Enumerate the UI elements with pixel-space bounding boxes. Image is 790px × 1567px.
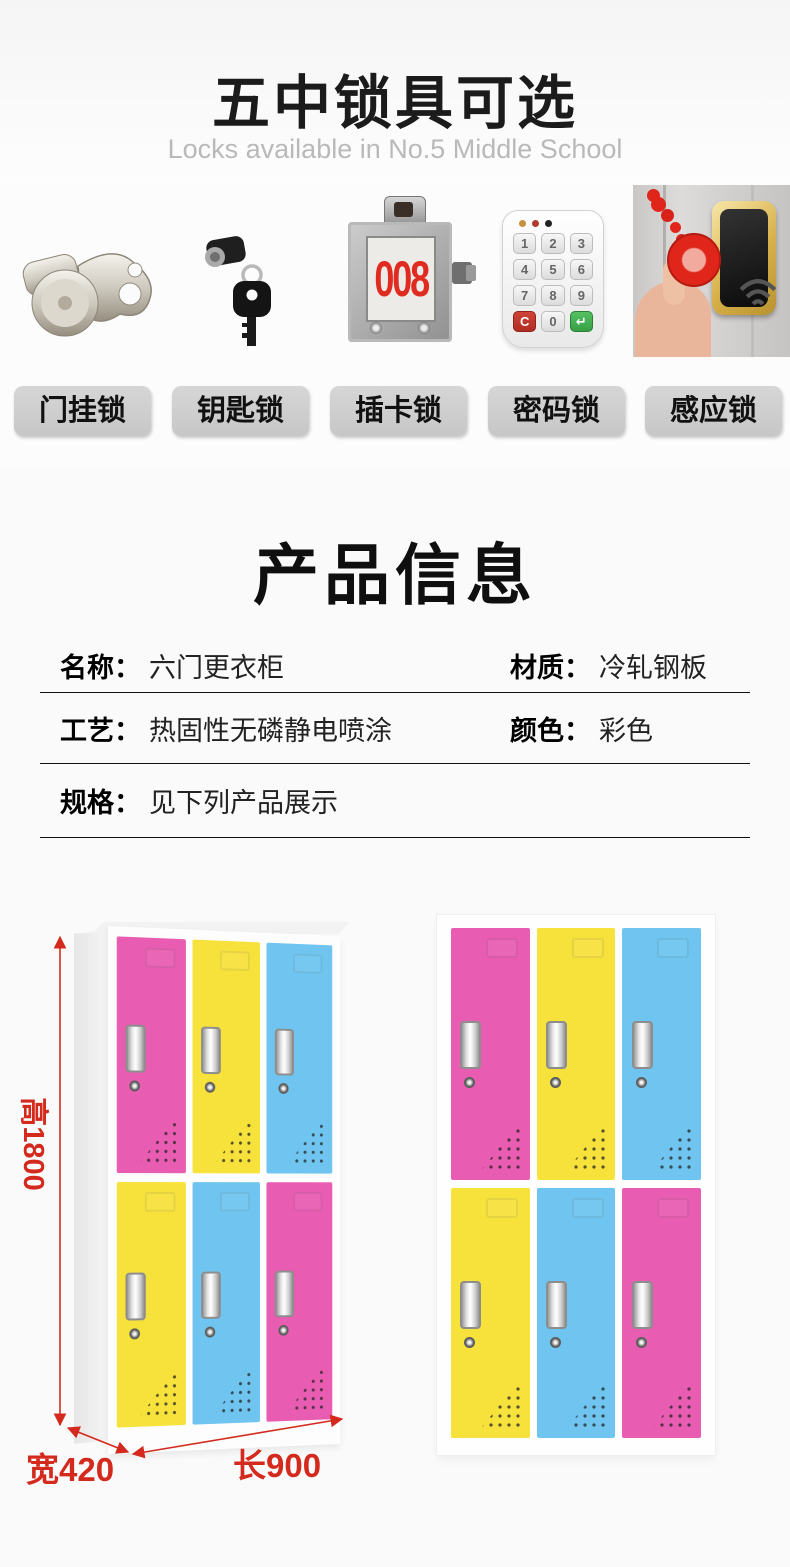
keypad-key-C: C: [513, 311, 536, 332]
locker-door-yellow: [117, 1182, 186, 1428]
card-lock-body: 008: [348, 222, 452, 342]
vent-holes: [650, 1119, 694, 1173]
locker-door-blue: [622, 928, 701, 1180]
keypad-lock-photo: 123456789C0↵: [498, 210, 606, 350]
keypad-key-6: 6: [570, 259, 593, 280]
keyhole-icon: [129, 1080, 140, 1091]
spec-label: 工艺：: [60, 709, 141, 748]
keypad-key-4: 4: [513, 259, 536, 280]
rfid-fob: [667, 233, 721, 287]
locker-door-blue: [266, 943, 332, 1174]
spec-value: 冷轧钢板: [599, 646, 707, 685]
locker-door-pink: [266, 1182, 332, 1422]
spec-row: 规格： 见下列产品展示: [40, 764, 750, 838]
card-lock-number-plate: 008: [366, 236, 436, 322]
spec-process: 工艺： 热固性无磷静电喷涂: [40, 709, 490, 748]
vent-holes: [212, 1113, 253, 1166]
lock-type-label-key: 钥匙锁: [172, 386, 309, 436]
rfid-lock-gold-body: [712, 201, 776, 315]
spec-value: 彩色: [599, 709, 653, 748]
hasp-lock-photo: [18, 236, 163, 342]
product-detail-page: 五中锁具可选 Locks available in No.5 Middle Sc…: [0, 0, 790, 1567]
keypad-key-2: 2: [541, 233, 564, 254]
name-tag-slot: [220, 1192, 250, 1212]
vent-holes: [137, 1112, 179, 1166]
lock-type-label-keypad: 密码锁: [488, 386, 625, 436]
locker-top-row: [451, 928, 701, 1180]
spec-row: 名称： 六门更衣柜 材质： 冷轧钢板: [40, 638, 750, 693]
vent-holes: [479, 1377, 523, 1431]
keyhole-icon: [129, 1328, 140, 1339]
name-tag-slot: [657, 1198, 689, 1218]
keypad-key-3: 3: [570, 233, 593, 254]
name-tag-slot: [145, 947, 176, 968]
locker-3d-view: [68, 918, 358, 1458]
door-handle: [274, 1028, 293, 1075]
spec-value: 六门更衣柜: [149, 646, 284, 685]
keyhole-icon: [550, 1337, 561, 1348]
locks-title: 五中锁具可选: [0, 56, 790, 140]
keyhole-icon: [278, 1325, 288, 1336]
spec-label: 规格：: [60, 781, 141, 820]
name-tag-slot: [572, 1198, 604, 1218]
door-handle: [125, 1273, 145, 1321]
product-info-title: 产品信息: [0, 522, 790, 618]
locker-door-pink: [117, 936, 186, 1173]
locks-subtitle: Locks available in No.5 Middle School: [0, 134, 790, 165]
keypad-lock-body: 123456789C0↵: [502, 210, 604, 348]
vent-holes: [212, 1363, 253, 1417]
locker-bottom-row: [117, 1182, 333, 1428]
lock-type-label-card: 插卡锁: [330, 386, 467, 436]
keypad-key-1: 1: [513, 233, 536, 254]
rfid-lock-black-panel: [720, 209, 768, 307]
door-handle: [546, 1021, 567, 1069]
door-handle: [546, 1281, 567, 1329]
vent-holes: [286, 1114, 326, 1167]
key-lock-photo: [203, 230, 288, 350]
keyhole-icon: [464, 1077, 475, 1088]
name-tag-slot: [220, 951, 250, 972]
led-dark-icon: [545, 220, 552, 227]
keypad-led-indicators: [519, 220, 552, 227]
vent-holes: [286, 1361, 326, 1415]
rfid-lock-photo: [633, 185, 790, 357]
spec-name: 名称： 六门更衣柜: [40, 646, 490, 685]
locker-door-blue: [537, 1188, 616, 1438]
spec-material: 材质： 冷轧钢板: [490, 646, 707, 685]
lock-type-label-rfid: 感应锁: [645, 386, 782, 436]
height-dimension-label: 高1800: [15, 1094, 57, 1194]
keypad-key-8: 8: [541, 285, 564, 306]
keypad-key-9: 9: [570, 285, 593, 306]
locker-bottom-row: [451, 1188, 701, 1438]
vent-holes: [137, 1365, 179, 1420]
lock-type-label-hasp: 门挂锁: [14, 386, 151, 436]
keypad-key-7: 7: [513, 285, 536, 306]
keyhole-icon: [204, 1081, 214, 1092]
keyhole-icon: [464, 1337, 475, 1348]
card-lock-photo: 008: [340, 196, 472, 354]
door-handle: [201, 1271, 221, 1319]
spec-label: 名称：: [60, 646, 141, 685]
locker-front-view: [437, 915, 715, 1455]
led-red-icon: [532, 220, 539, 227]
vent-holes: [650, 1377, 694, 1431]
locker-top-row: [117, 936, 333, 1173]
name-tag-slot: [572, 938, 604, 958]
locker-door-pink: [622, 1188, 701, 1438]
name-tag-slot: [657, 938, 689, 958]
locker-door-blue: [193, 1182, 260, 1425]
name-tag-slot: [293, 953, 322, 973]
spec-label: 材质：: [510, 646, 591, 685]
led-amber-icon: [519, 220, 526, 227]
locker-door-yellow: [537, 928, 616, 1180]
vent-holes: [564, 1119, 608, 1173]
spec-label: 颜色：: [510, 709, 591, 748]
card-lock-number: 008: [374, 250, 428, 308]
door-handle: [125, 1024, 145, 1072]
vent-holes: [564, 1377, 608, 1431]
name-tag-slot: [293, 1192, 322, 1211]
keyhole-icon: [550, 1077, 561, 1088]
name-tag-slot: [486, 1198, 518, 1218]
keyhole-icon: [204, 1327, 214, 1338]
name-tag-slot: [486, 938, 518, 958]
locker-front-face: [108, 926, 340, 1454]
door-handle: [460, 1021, 481, 1069]
door-handle: [274, 1270, 293, 1317]
keypad-keys: 123456789C0↵: [513, 233, 593, 332]
spec-size: 规格： 见下列产品展示: [40, 781, 490, 820]
card-lock-side-latch: [452, 262, 472, 284]
keypad-key-5: 5: [541, 259, 564, 280]
rfid-wave-icon: [734, 243, 782, 341]
hasp-lock-icon: [18, 236, 163, 342]
spec-value: 见下列产品展示: [149, 781, 338, 820]
door-handle: [632, 1021, 653, 1069]
keyhole-icon: [636, 1077, 647, 1088]
width-dimension-label: 宽420: [26, 1443, 114, 1491]
spec-row: 工艺： 热固性无磷静电喷涂 颜色： 彩色: [40, 693, 750, 764]
locker-door-yellow: [451, 1188, 530, 1438]
length-dimension-label: 长900: [233, 1439, 321, 1487]
vent-holes: [479, 1119, 523, 1173]
locker-door-yellow: [193, 940, 260, 1174]
keyhole-icon: [278, 1083, 288, 1094]
spec-table: 名称： 六门更衣柜 材质： 冷轧钢板 工艺： 热固性无磷静电喷涂 颜色： 彩色: [40, 638, 750, 838]
spec-value: 热固性无磷静电喷涂: [149, 709, 392, 748]
key-lock-icon: [203, 230, 288, 350]
wristband-coil: [651, 197, 666, 212]
keypad-key-0: 0: [541, 311, 564, 332]
door-handle: [632, 1281, 653, 1329]
keypad-key-↵: ↵: [570, 311, 593, 332]
spec-color: 颜色： 彩色: [490, 709, 653, 748]
door-handle: [460, 1281, 481, 1329]
door-handle: [201, 1026, 221, 1074]
locker-door-pink: [451, 928, 530, 1180]
name-tag-slot: [145, 1192, 176, 1212]
keyhole-icon: [636, 1337, 647, 1348]
rfid-photo-background: [633, 185, 790, 357]
